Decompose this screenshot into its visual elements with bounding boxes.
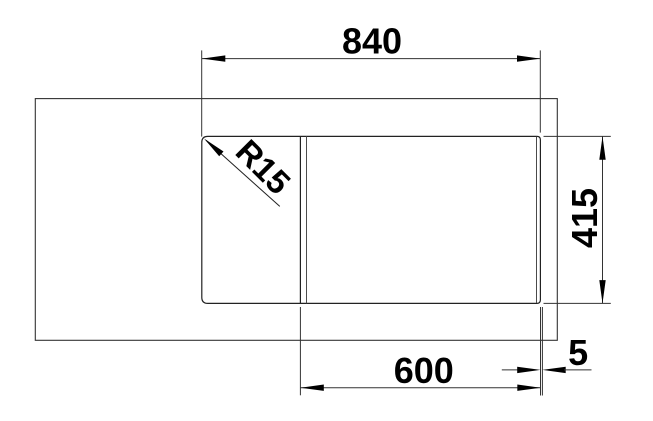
svg-text:R15: R15 bbox=[229, 132, 298, 201]
svg-text:415: 415 bbox=[564, 188, 605, 248]
svg-text:5: 5 bbox=[568, 332, 588, 373]
svg-text:600: 600 bbox=[394, 350, 454, 391]
svg-text:840: 840 bbox=[342, 21, 402, 62]
